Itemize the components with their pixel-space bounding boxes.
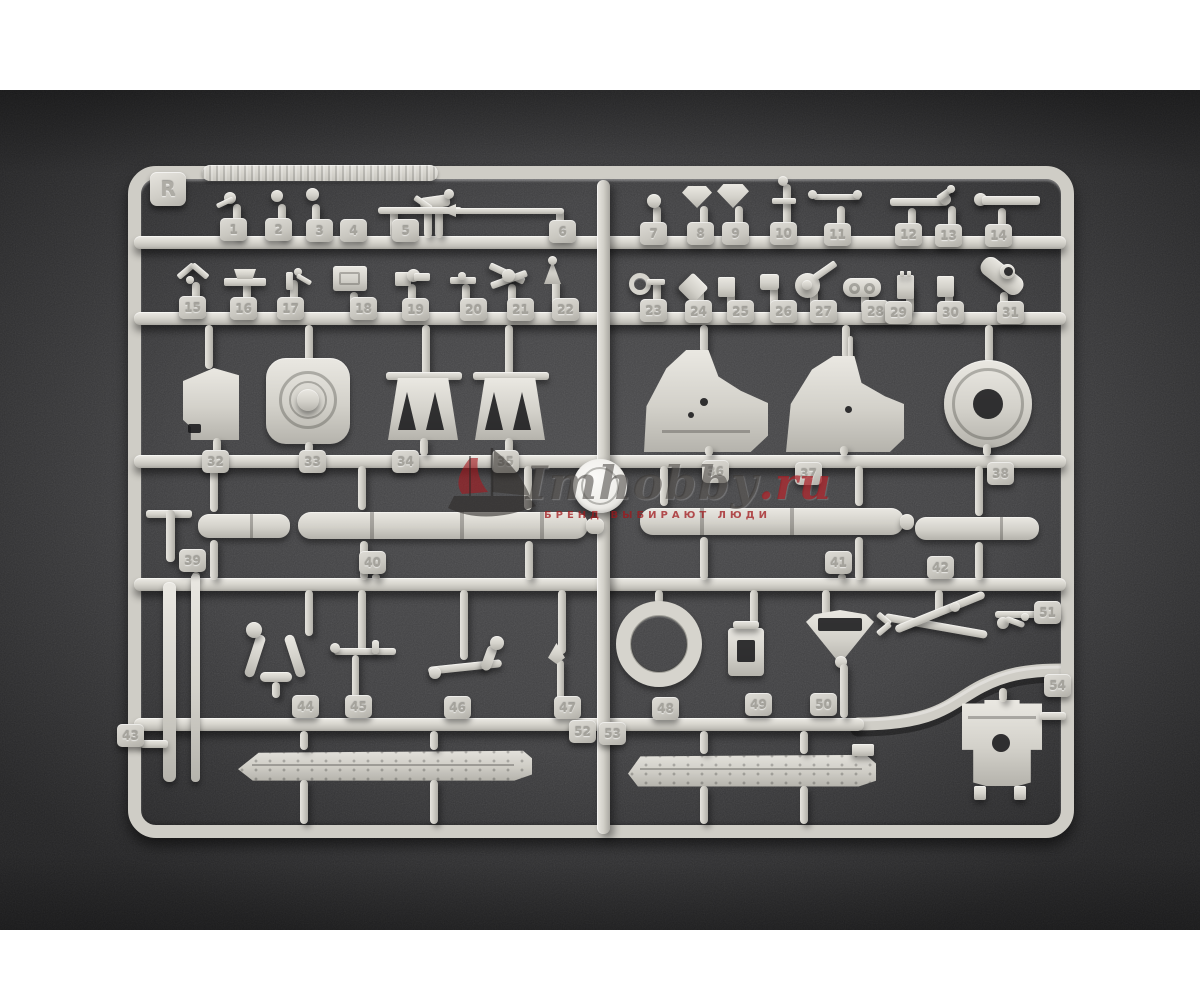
part-hole: [188, 424, 201, 433]
runner-horizontal: [134, 718, 864, 731]
part-shape: [1014, 786, 1026, 800]
sprue-gate: [999, 688, 1007, 702]
part-number-tag: 38: [987, 462, 1014, 485]
part-shape: [900, 271, 904, 277]
part-number-tag: 50: [810, 693, 837, 716]
part-number-tag: 32: [202, 450, 229, 473]
sprue-gate: [848, 336, 853, 358]
part-shape: [234, 269, 256, 279]
part-hole: [1004, 267, 1013, 276]
part-shape: [718, 277, 735, 297]
part-number-tag: 54: [1044, 674, 1071, 697]
part-shape: [502, 269, 515, 282]
part-number-tag: 43: [117, 724, 144, 747]
part-shape: [915, 517, 1039, 540]
part-number-tag: 9: [722, 222, 749, 245]
part-number-tag: 42: [927, 556, 954, 579]
part-number-tag: 35: [492, 450, 519, 473]
part-shape: [306, 188, 319, 201]
sprue-gate: [272, 682, 280, 698]
part-shape: [140, 740, 168, 748]
sprue-gate: [505, 325, 513, 379]
part-number-tag: 17: [277, 297, 304, 320]
part-number-tag: 19: [402, 298, 429, 321]
sprue-gate: [422, 325, 430, 379]
part-shape: [372, 640, 379, 654]
part-number-tag: 1: [220, 218, 247, 241]
part-detail-ring: [581, 467, 619, 505]
sprue-gate: [700, 731, 708, 754]
part-number-tag: 3: [306, 219, 333, 242]
part-number-tag: 2: [265, 218, 292, 241]
part-number-tag: 18: [350, 297, 377, 320]
part-shape: [271, 190, 283, 202]
part-number-tag: 53: [599, 722, 626, 745]
part-shape: [414, 273, 430, 281]
sprue-gate: [840, 664, 848, 718]
sprue-gate: [430, 780, 438, 824]
part-number-tag: 40: [359, 551, 386, 574]
sprue-gate: [524, 466, 532, 510]
part-shape: [852, 744, 874, 756]
part-detail-ring: [849, 283, 860, 294]
part-number-tag: 29: [885, 301, 912, 324]
part-hole: [845, 406, 852, 413]
sprue-gate: [800, 786, 808, 824]
part-detail-line: [968, 716, 1036, 719]
part-shape: [1021, 613, 1029, 621]
part-shape: [733, 621, 759, 629]
sprue-gate: [558, 590, 566, 654]
part-shape: [191, 574, 200, 782]
part-shape: [475, 378, 545, 440]
part-number-tag: 25: [727, 300, 754, 323]
sprue-gate: [305, 590, 313, 636]
part-detail-line: [460, 512, 464, 539]
part-number-tag: 46: [444, 696, 471, 719]
mold-stamp: [202, 165, 438, 181]
part-shape: [947, 185, 955, 193]
part-shape: [853, 190, 862, 199]
product-photo: R 12345678910111213141516171819202122232…: [0, 0, 1200, 982]
part-shape: [937, 276, 954, 297]
part-shape: [334, 648, 396, 655]
sprue-gate: [700, 537, 708, 580]
part-number-tag: 27: [810, 300, 837, 323]
part-number-tag: 34: [392, 450, 419, 473]
part-number-tag: 11: [824, 223, 851, 246]
part-hole: [700, 398, 708, 406]
part-hole: [818, 618, 862, 631]
sprue-gate: [983, 444, 991, 456]
part-shape: [897, 275, 914, 299]
part-shape: [388, 378, 458, 440]
part-shape: [163, 582, 176, 782]
part-number-tag: 41: [825, 551, 852, 574]
part-detail-line: [540, 512, 544, 539]
sprue-gate: [800, 731, 808, 754]
part-number-tag: 45: [345, 695, 372, 718]
part-shape: [444, 189, 454, 199]
part-shape: [260, 672, 292, 682]
part-number-tag: 7: [640, 222, 667, 245]
part-shape: [802, 280, 812, 290]
part-number-tag: 16: [230, 297, 257, 320]
sprue-gate: [300, 731, 308, 750]
part-number-tag: 23: [640, 299, 667, 322]
part-detail-line: [252, 764, 514, 766]
part-hole: [992, 734, 1010, 752]
part-hole: [688, 412, 694, 418]
part-shape: [974, 786, 986, 800]
part-number-tag: 14: [985, 224, 1012, 247]
part-number-tag: 4: [340, 219, 367, 242]
part-shape: [647, 279, 665, 285]
part-shape: [586, 518, 604, 534]
part-number-tag: 15: [179, 296, 206, 319]
sprue-gate: [838, 574, 846, 580]
part-shape: [330, 643, 340, 653]
part-detail-line: [662, 430, 750, 433]
part-shape: [286, 272, 293, 290]
sprue-gate: [700, 325, 708, 353]
part-number-tag: 21: [507, 298, 534, 321]
part-detail-line: [250, 514, 253, 538]
sprue-gate: [300, 780, 308, 824]
part-shape: [760, 274, 779, 290]
sprue-gate: [424, 210, 432, 238]
sprue-gate: [358, 466, 366, 510]
part-number-tag: 44: [292, 695, 319, 718]
part-shape: [647, 194, 661, 208]
sprue-gate: [705, 446, 713, 456]
part-detail-line: [1000, 517, 1003, 540]
part-detail-frame: [339, 272, 360, 285]
part-number-tag: 51: [1034, 601, 1061, 624]
part-shape: [907, 271, 911, 277]
part-shape: [297, 389, 319, 411]
sprue-gate: [975, 542, 983, 580]
part-shape: [198, 514, 290, 538]
part-number-tag: 10: [770, 222, 797, 245]
part-number-tag: 39: [179, 549, 206, 572]
sprue-gate: [358, 590, 366, 652]
part-shape: [490, 636, 504, 650]
part-number-tag: 33: [299, 450, 326, 473]
part-shape: [982, 196, 1040, 205]
part-number-tag: 52: [569, 720, 596, 743]
part-number-tag: 22: [552, 298, 579, 321]
part-hole: [737, 640, 755, 662]
part-shape: [1040, 712, 1066, 720]
sprue-gate: [840, 446, 848, 456]
part-detail-line: [790, 508, 794, 535]
part-number-tag: 13: [935, 224, 962, 247]
part-shape: [246, 622, 262, 638]
part-number-tag: 30: [937, 301, 964, 324]
sprue-gate: [700, 786, 708, 824]
sprue-gate: [557, 660, 564, 700]
sprue-gate: [525, 541, 533, 580]
part-number-tag: 6: [549, 220, 576, 243]
part-shape: [548, 256, 557, 265]
part-shape: [778, 176, 788, 186]
part-number-tag: 20: [460, 298, 487, 321]
part-shape: [772, 198, 796, 204]
part-number-tag: 36: [702, 460, 729, 483]
sprue-gate: [205, 325, 213, 369]
part-number-tag: 26: [770, 300, 797, 323]
sprue-gate: [975, 466, 983, 516]
part-detail-ring: [630, 615, 688, 673]
part-shape: [628, 752, 876, 788]
sprue-gate: [660, 466, 668, 506]
part-number-tag: 31: [997, 301, 1024, 324]
part-shape: [458, 272, 466, 280]
part-shape: [640, 508, 904, 535]
sprue-gate: [420, 438, 428, 456]
sprue-gate: [855, 537, 863, 580]
part-number-tag: 49: [745, 693, 772, 716]
sprue-gate: [430, 731, 438, 750]
part-detail-ring: [864, 283, 875, 294]
part-number-tag: 37: [795, 462, 822, 485]
part-number-tag: 12: [895, 223, 922, 246]
part-shape: [224, 278, 266, 286]
sprue-letter-tag: R: [150, 172, 186, 206]
sprue-gate: [460, 590, 468, 660]
sprue-gate: [210, 540, 218, 580]
sprue-gate: [166, 510, 175, 562]
sprue-gate: [855, 466, 863, 506]
part-number-tag: 5: [392, 219, 419, 242]
part-detail-line: [370, 512, 374, 539]
part-shape: [808, 190, 817, 199]
part-number-tag: 24: [685, 300, 712, 323]
sprue-gate: [985, 325, 993, 363]
part-detail-line: [640, 768, 862, 770]
part-shape: [298, 512, 588, 539]
part-shape: [900, 514, 914, 530]
part-detail-line: [700, 508, 704, 535]
part-shape: [186, 276, 194, 284]
part-shape: [950, 602, 960, 612]
part-shape: [429, 667, 441, 679]
part-shape: [452, 208, 564, 214]
sprue-gate: [372, 574, 380, 580]
part-number-tag: 8: [687, 222, 714, 245]
part-hole: [973, 389, 1003, 419]
part-number-tag: 48: [652, 697, 679, 720]
part-number-tag: 47: [554, 696, 581, 719]
